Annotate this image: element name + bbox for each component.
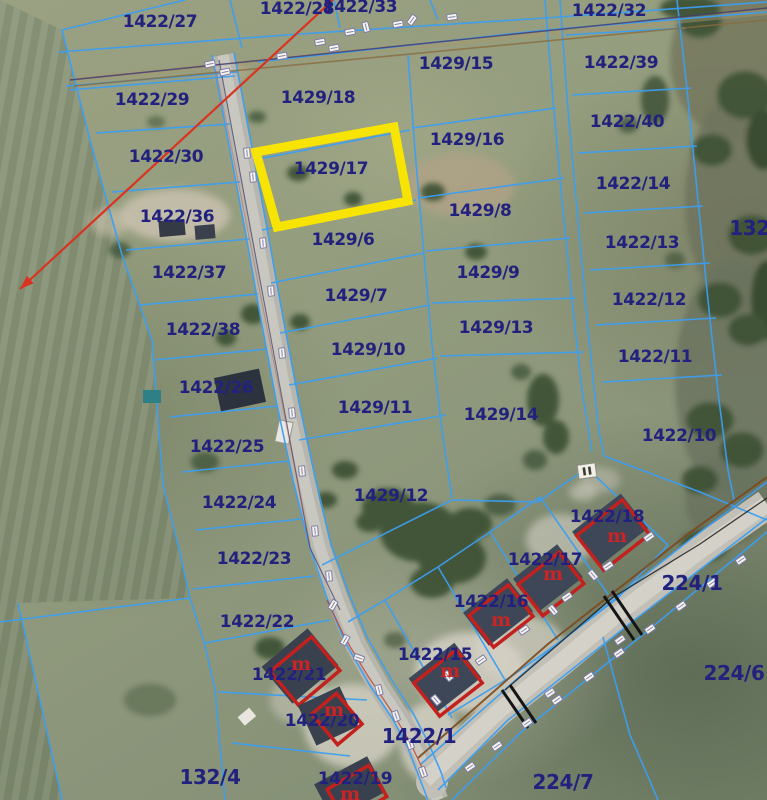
parcel-label: 1422/24 (202, 493, 276, 513)
utility-marker-icon (204, 59, 216, 68)
parcel-label: 1422/39 (584, 53, 658, 73)
parcel-label: 1429/9 (457, 263, 520, 283)
utility-marker-icon (643, 623, 656, 635)
utility-marker-icon (339, 633, 351, 646)
parcel-label: 1429/10 (331, 340, 405, 360)
parcel-label: 1422/17 (508, 550, 582, 570)
utility-marker-icon (734, 554, 747, 566)
utility-marker-icon (374, 684, 384, 696)
parcel-label: 1422/37 (152, 263, 226, 283)
parcel-label: 1422/38 (166, 320, 240, 340)
parcel-label: 1422/12 (612, 290, 686, 310)
parcel-label: 1422/40 (590, 112, 664, 132)
parcel-label: 1422/1 (382, 724, 457, 748)
parcel-label: 1429/17 (294, 159, 368, 179)
roads (70, 12, 767, 800)
utility-marker-icon (325, 570, 333, 582)
utility-marker-icon (446, 13, 458, 21)
parcel-label: 1422/11 (618, 347, 692, 367)
parcel-label: 1429/18 (281, 88, 355, 108)
utility-marker-icon (288, 407, 296, 419)
utility-marker-icon (276, 52, 288, 61)
utility-marker-icon (642, 531, 655, 543)
parcel-label: 1422/28 (260, 0, 334, 19)
parcel-label: 132/4 (180, 765, 241, 789)
utility-marker-icon (344, 28, 356, 37)
parcel-boundaries (0, 0, 767, 800)
parcel-label: 1422/14 (596, 174, 670, 194)
parcel-label: 1422/36 (140, 207, 214, 227)
utility-marker-icon (474, 654, 487, 666)
parcel-label: 1422/18 (570, 507, 644, 527)
utility-marker-icon (392, 20, 404, 29)
utility-marker-icon (278, 347, 286, 359)
parcel-label: 1422/26 (179, 378, 253, 398)
parcel-label: 1422/27 (123, 12, 197, 32)
utility-marker-icon (430, 694, 442, 707)
parcel-label: 1422/10 (642, 426, 716, 446)
parcel-label: 1422/20 (285, 711, 359, 731)
parcel-label: 1429/8 (449, 201, 512, 221)
utility-marker-icon (601, 560, 614, 572)
utility-marker-icon (517, 624, 530, 636)
culvert-symbol (604, 591, 642, 640)
utility-marker-icon (587, 569, 599, 582)
utility-marker-layer (0, 0, 767, 800)
building-mark-label: m (543, 563, 563, 585)
parcel-label: 1429/6 (312, 230, 375, 250)
utility-marker-icon (267, 285, 275, 297)
utility-marker-icon (243, 147, 251, 159)
utility-marker-icon (550, 694, 563, 706)
utility-marker-icon (353, 653, 366, 663)
utility-marker-icon (705, 577, 718, 589)
utility-marker-icon (327, 598, 339, 611)
parcel-label-layer: 1422/271422/281422/331422/321429/151422/… (0, 0, 767, 800)
utility-marker-icon (219, 67, 231, 76)
plate-marker (577, 463, 597, 479)
parcel-label: 224/6 (704, 661, 765, 685)
utility-marker-icon (560, 591, 573, 603)
trees (109, 0, 767, 716)
left-field-texture (0, 0, 767, 800)
utility-marker-icon (418, 766, 428, 779)
parcel-label: 1429/12 (354, 486, 428, 506)
utility-marker-icon (543, 687, 556, 699)
utility-marker-icon (520, 717, 533, 729)
parcel-label: 1422/33 (323, 0, 397, 17)
parcel-label: 1422/23 (217, 549, 291, 569)
utility-marker-icon (547, 604, 559, 617)
utility-marker-icon (311, 525, 319, 537)
utility-marker-icon (674, 600, 687, 612)
map-overlay (0, 0, 767, 800)
building-mark-label: m (607, 525, 627, 547)
parcel-label: 1422/29 (115, 90, 189, 110)
parcel-label: 1429/7 (325, 286, 388, 306)
parcel-label: 224/1 (662, 571, 723, 595)
building-mark-label: m (324, 699, 344, 721)
building-mark-label: m (440, 660, 460, 682)
parcel-label: 1422/15 (398, 645, 472, 665)
utility-marker-icon (612, 647, 625, 659)
utility-marker-icon (259, 237, 267, 249)
utility-marker-icon (490, 740, 503, 752)
map-viewport[interactable]: 1422/271422/281422/331422/321429/151422/… (0, 0, 767, 800)
utility-marker-icon (405, 738, 415, 751)
parcel-label: 1422/13 (605, 233, 679, 253)
pool (143, 390, 161, 403)
building-mark-label: m (291, 653, 311, 675)
bottom-road (425, 504, 767, 780)
culvert-symbol (502, 685, 536, 728)
utility-marker-icon (328, 44, 340, 53)
parcel-label: 1422/25 (190, 437, 264, 457)
parcel-label: 224/7 (533, 770, 594, 794)
survey-arrow-icon (20, 276, 34, 289)
utility-marker-icon (249, 171, 257, 183)
parcel-label: 1422/19 (318, 769, 392, 789)
utility-lines (70, 8, 767, 772)
utility-marker-icon (298, 465, 306, 477)
utility-marker-icon (582, 671, 595, 683)
dirt-track (70, 12, 767, 80)
utility-marker-icon (361, 21, 371, 33)
vehicle (275, 420, 293, 444)
utility-marker-icon (314, 38, 326, 47)
selected-parcel-outline[interactable] (256, 127, 408, 227)
building-mark-label: m (491, 609, 511, 631)
utility-marker-icon (442, 670, 454, 683)
parcel-label: 1422/22 (220, 612, 294, 632)
parcel-label: 1422/16 (454, 592, 528, 612)
parcel-label: 132/ (729, 216, 767, 240)
parcel-label: 1429/15 (419, 54, 493, 74)
parcel-label: 1422/30 (129, 147, 203, 167)
utility-marker-icon (406, 13, 418, 26)
parcel-label: 1422/21 (252, 665, 326, 685)
parcel-label: 1422/32 (572, 1, 646, 21)
utility-marker-icon (613, 634, 626, 646)
parcel-label: 1429/13 (459, 318, 533, 338)
ground-patches (90, 62, 620, 782)
utility-marker-icon (463, 761, 476, 773)
parcel-label: 1429/11 (338, 398, 412, 418)
parcel-label: 1429/14 (464, 405, 538, 425)
parcel-label: 1429/16 (430, 130, 504, 150)
buildings (143, 219, 649, 800)
building-mark-label: m (340, 783, 360, 800)
utility-marker-icon (391, 710, 401, 723)
